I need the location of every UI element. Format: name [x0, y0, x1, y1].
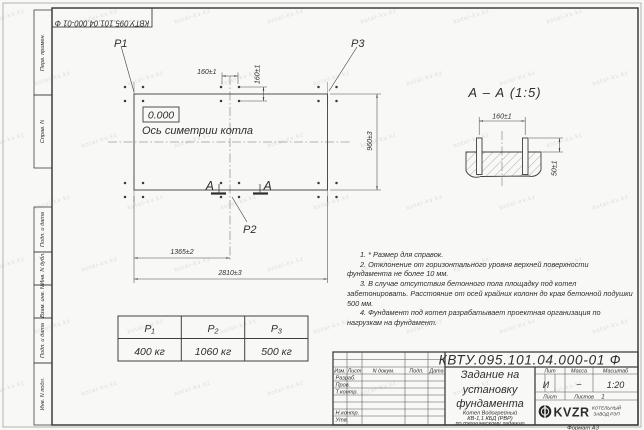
- plan-view: P1 P3 P2 0.000 Ось симетрии котла 160±1 …: [108, 38, 381, 283]
- company-line2: ЗАВОД РЭП: [593, 412, 620, 417]
- dim-total: 2810±3: [217, 270, 241, 277]
- load-point-p2: P2: [243, 224, 256, 236]
- load-table-header-p1: P₁: [144, 323, 155, 335]
- note-4: 4. Фундамент под котел разрабатывает про…: [347, 308, 635, 327]
- stamp-inv-n-podl: Инв. N подл.: [40, 378, 46, 411]
- col-podp: Подп.: [409, 369, 423, 375]
- dim-bolt-vertical: 160±1: [255, 64, 262, 84]
- list-label: Лист: [542, 394, 557, 400]
- title-block: КВТУ.095.101.04.000-01 Ф Изм. Лист N док…: [333, 352, 638, 430]
- load-table-value-p3: 500 кг: [261, 346, 292, 358]
- axis-of-symmetry-label: Ось симетрии котла: [142, 125, 253, 137]
- load-table-header-p3: P₃: [271, 323, 282, 335]
- doc-subtitle-line3: по техническому заданию: [455, 421, 525, 427]
- massa-header: Масса: [571, 369, 587, 375]
- stamp-inv-n-dubl: Инв. N дубл.: [40, 252, 46, 284]
- load-table: P₁ P₂ P₃ 400 кг 1060 кг 500 кг: [118, 316, 308, 361]
- col-list: Лист: [347, 369, 362, 375]
- drawing-linework: КВТУ.095.101.04.000-01 Ф Перв. примен. С…: [0, 0, 644, 430]
- row-utv: Утв.: [335, 418, 349, 424]
- doc-title-line1: Задание на: [461, 369, 520, 381]
- listov-label: Листов: [573, 394, 594, 400]
- corner-stamp: КВТУ.095.101.04.000-01 Ф: [52, 8, 152, 27]
- side-stamp-labels: Перв. примен. Справ. N Подп. и дата Инв.…: [40, 34, 46, 410]
- drawing-sheet: kotel-kv.kzkotel-kv.kzkotel-kv.kzkotel-k…: [0, 0, 644, 430]
- load-point-p3: P3: [351, 38, 365, 50]
- technical-notes: 1. * Размер для справок. 2. Отклонение о…: [347, 250, 635, 328]
- section-dim-protrusion: 50±1: [552, 160, 559, 176]
- stamp-perv-primen: Перв. примен.: [40, 34, 46, 71]
- stamp-vzam-inv-n: Взам. инв. N: [40, 284, 46, 318]
- row-tkontr: Т.контр.: [336, 390, 359, 396]
- corner-doc-number: КВТУ.095.101.04.000-01 Ф: [55, 18, 149, 27]
- row-razrab: Разраб.: [336, 376, 356, 382]
- col-data: Дата: [428, 369, 443, 375]
- section-view: А – А (1:5) 160±1 50±1: [466, 85, 563, 186]
- load-table-value-p1: 400 кг: [134, 346, 165, 358]
- load-point-p1: P1: [114, 38, 127, 50]
- section-title: А – А (1:5): [467, 85, 541, 100]
- massa-value: –: [576, 380, 582, 389]
- load-table-value-p2: 1060 кг: [195, 346, 231, 358]
- doc-title-line3: фундамента: [456, 398, 524, 410]
- masshtab-value: 1:20: [607, 380, 625, 390]
- stamp-sprav-n: Справ. N: [40, 119, 46, 143]
- section-letter-right: А: [263, 179, 272, 193]
- section-cut-marks: [211, 184, 268, 194]
- anchor-bolt-right: [523, 138, 529, 175]
- stamp-podp-data-1: Подп. и дата: [40, 212, 46, 247]
- section-letter-left: А: [205, 179, 214, 193]
- stamp-podp-data-2: Подп. и дата: [40, 323, 46, 358]
- load-table-header-p2: P₂: [207, 323, 218, 335]
- dim-mid: 1365±2: [170, 249, 193, 256]
- dim-height: 960±3: [367, 131, 374, 151]
- row-nkontr: Н.контр.: [336, 411, 360, 417]
- dim-bolt-horizontal: 160±1: [197, 69, 217, 76]
- company-line1: КОТЕЛЬНЫЙ: [592, 404, 622, 411]
- masshtab-header: Масштаб: [603, 369, 629, 375]
- col-izm: Изм.: [334, 369, 346, 375]
- row-prov: Пров.: [336, 383, 351, 389]
- logo-text: KVZR: [554, 406, 590, 420]
- anchor-bolt-left: [477, 138, 483, 175]
- col-n-dokum: N докум.: [373, 369, 395, 375]
- listov-value: 1: [601, 393, 604, 400]
- section-dim-bolt-spacing: 160±1: [492, 114, 512, 121]
- note-1: 1. * Размер для справок.: [347, 250, 635, 260]
- lit-header: Лит: [543, 369, 556, 375]
- elevation-value: 0.000: [148, 110, 174, 122]
- note-3: 3. В случае отсутствия бетонного пола пл…: [347, 279, 635, 308]
- format-label: Формат А3: [567, 425, 599, 430]
- doc-title-line2: установку: [462, 384, 519, 396]
- title-block-doc-number: КВТУ.095.101.04.000-01 Ф: [439, 353, 622, 368]
- lit-value: И: [543, 380, 550, 390]
- kvzr-logo: KVZR КОТЕЛЬНЫЙ ЗАВОД РЭП: [539, 404, 622, 420]
- note-2: 2. Отклонение от горизонтального уровня …: [347, 260, 635, 279]
